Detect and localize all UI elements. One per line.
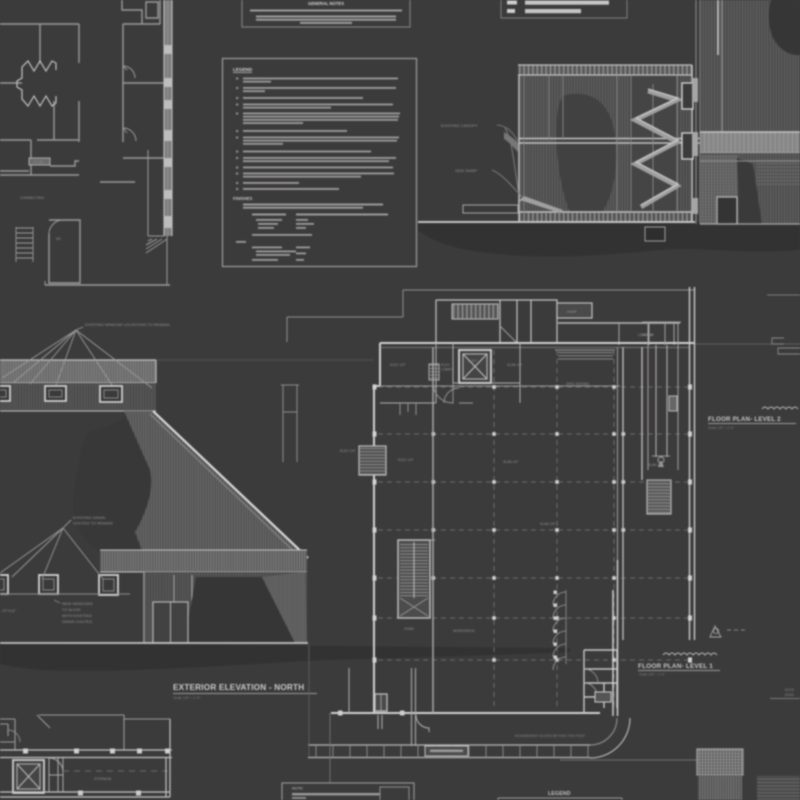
svg-text:LEGEND: LEGEND [233, 67, 253, 72]
svg-text:Scale 1/8" = 1'-0": Scale 1/8" = 1'-0" [173, 696, 201, 700]
svg-text:NO BASEMENT ACCESS BEYOND THIS: NO BASEMENT ACCESS BEYOND THIS POINT [515, 734, 585, 738]
svg-text:SIDE RAMP: SIDE RAMP [455, 168, 477, 173]
svg-text:CHUTES TO REMAIN: CHUTES TO REMAIN [73, 521, 113, 526]
svg-text:WITH EXISTING: WITH EXISTING [62, 613, 92, 618]
svg-text:LADDER: LADDER [640, 333, 654, 337]
svg-text:EXISTING WINDOW LOCATIONS TO R: EXISTING WINDOW LOCATIONS TO REMAIN [85, 322, 170, 327]
svg-text:ELEV 1/4": ELEV 1/4" [398, 458, 414, 462]
svg-text:SPEC ROOMS: SPEC ROOMS [566, 382, 590, 386]
svg-text:GENERAL NOTES: GENERAL NOTES [308, 1, 344, 6]
svg-text:NEW WINDOWS: NEW WINDOWS [62, 601, 93, 606]
svg-text:STORAGE: STORAGE [94, 777, 112, 781]
svg-text:Scale 1/8" = 1'-0": Scale 1/8" = 1'-0" [708, 426, 735, 430]
svg-text:LOBBY: LOBBY [441, 368, 453, 372]
svg-text:SLAB 1/4": SLAB 1/4" [507, 363, 523, 367]
svg-text:FLOOR PLAN- LEVEL 2: FLOOR PLAN- LEVEL 2 [708, 416, 781, 423]
svg-text:LEGEND: LEGEND [548, 791, 571, 797]
svg-text:SLAB 1/4": SLAB 1/4" [540, 522, 556, 526]
svg-text:ELEV 1/4": ELEV 1/4" [390, 363, 406, 367]
svg-text:CLOS: CLOS [34, 160, 44, 164]
svg-text:DOCK: DOCK [785, 688, 795, 692]
svg-text:EXTERIOR ELEVATION - NORTH: EXTERIOR ELEVATION - NORTH [173, 683, 304, 692]
svg-text:ELEV: ELEV [441, 363, 450, 367]
svg-text:TO ALIGN: TO ALIGN [62, 607, 80, 612]
svg-text:EDGE: EDGE [785, 693, 794, 697]
svg-text:WC: WC [56, 237, 62, 241]
svg-text:FINISHES: FINISHES [233, 196, 253, 201]
svg-text:STAIR: STAIR [404, 627, 414, 631]
svg-text:..STYLE": ..STYLE" [0, 608, 17, 613]
svg-text:NOTE:: NOTE: [292, 787, 304, 791]
svg-text:SLAB 1/4": SLAB 1/4" [503, 460, 519, 464]
svg-text:FLOOR PLAN- LEVEL 1: FLOOR PLAN- LEVEL 1 [638, 663, 713, 670]
svg-text:DRAIN CHUTES: DRAIN CHUTES [62, 619, 92, 624]
svg-text:EXISTING CANOPY: EXISTING CANOPY [441, 123, 478, 128]
svg-text:WORKSPACE: WORKSPACE [453, 629, 476, 633]
svg-text:RAMP: RAMP [567, 310, 578, 314]
svg-text:SLAB 1/4": SLAB 1/4" [648, 463, 663, 467]
svg-text:Scale 1/8" = 1'-0": Scale 1/8" = 1'-0" [639, 673, 666, 677]
svg-text:ELEV 1/4": ELEV 1/4" [340, 449, 356, 453]
svg-text:EXISTING DRAIN: EXISTING DRAIN [73, 515, 105, 520]
svg-text:CONNECTING: CONNECTING [20, 196, 44, 200]
svg-text:ELEV: ELEV [468, 359, 477, 363]
